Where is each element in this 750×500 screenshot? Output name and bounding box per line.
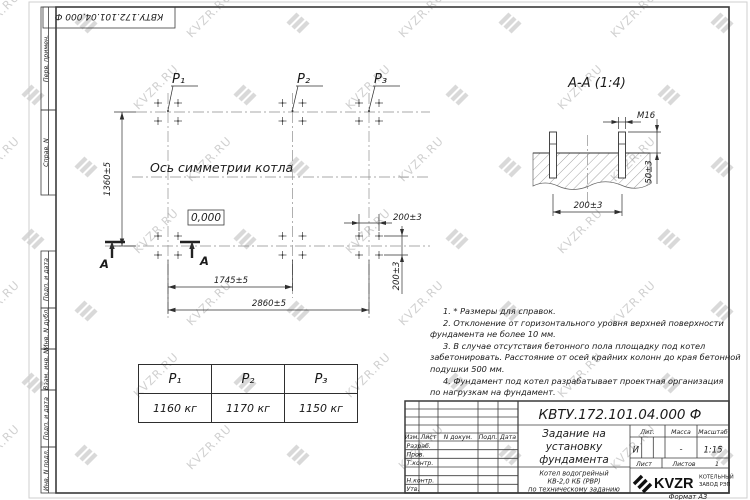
- row-razrab: Разраб.: [407, 442, 431, 450]
- row-prov: Пров.: [407, 452, 425, 459]
- list-label: Лист: [635, 461, 652, 468]
- listov-value: 1: [715, 461, 719, 468]
- masshtab-label: Масштаб: [698, 428, 728, 436]
- margin-label-podp-data-1: Подп. и дата: [43, 258, 50, 301]
- plan-dim-bolt-horizontal: 200±3: [393, 213, 422, 223]
- load-table-header: P₂: [212, 365, 285, 394]
- section-view: А-А (1:4) М16 50±3 200±3: [533, 76, 661, 216]
- note-line: 2. Отклонение от горизонтального уровня …: [430, 318, 741, 330]
- corner-stamp-number: КВТУ.172.101.04.000 Ф: [54, 11, 163, 21]
- section-mark-letter-1: А: [99, 257, 109, 271]
- col-dokum: N докум.: [444, 434, 473, 441]
- row-utv: Утв.: [407, 486, 420, 493]
- section-dim-thread: М16: [637, 111, 656, 121]
- plan-dim-height: 1360±5: [103, 162, 113, 196]
- product-line-1: Котел водогрейный: [539, 470, 609, 478]
- margin-label-vzam-inv: Взам. инв. N: [43, 349, 50, 390]
- logo-caption-2: ЗАВОД РЭП: [699, 482, 731, 488]
- lit-label: Лит.: [639, 429, 654, 436]
- masshtab-value: 1:15: [703, 446, 722, 456]
- margin-label-sprav-n: Справ. N: [43, 138, 50, 167]
- anchor-bolt-marks: [154, 99, 383, 259]
- load-table-value-row: 1160 кг 1170 кг 1150 кг: [139, 394, 358, 423]
- load-table-value: 1170 кг: [212, 394, 285, 423]
- col-izm: Изм.: [405, 434, 420, 441]
- load-table-header: P₁: [139, 365, 212, 394]
- section-dim-protrusion: 50±3: [645, 160, 655, 183]
- plan-load-label-p3: P₃: [374, 72, 387, 87]
- section-title: А-А (1:4): [567, 76, 626, 91]
- title-block-doc-number: КВТУ.172.101.04.000 Ф: [539, 407, 702, 423]
- load-table-value: 1150 кг: [285, 394, 358, 423]
- technical-notes: 1. * Размеры для справок. 2. Отклонение …: [430, 306, 741, 399]
- section-cut-marks: [105, 242, 200, 258]
- logo-caption-1: КОТЕЛЬНЫЙ: [699, 474, 734, 481]
- kvzr-logo-icon: [634, 476, 651, 492]
- note-line: забетонировать. Расстояние от осей крайн…: [430, 352, 741, 364]
- plan-level-mark: 0,000: [191, 212, 221, 224]
- corner-stamp: КВТУ.172.101.04.000 Ф: [43, 7, 175, 28]
- col-data: Дата: [499, 434, 516, 441]
- section-mark-letter-2: А: [199, 254, 209, 268]
- doc-title-line-2: установку: [545, 441, 603, 453]
- plan-dim-bolt-vertical: 200±3: [392, 262, 402, 291]
- load-table-header: P₃: [285, 365, 358, 394]
- load-table-header-row: P₁ P₂ P₃: [139, 365, 358, 394]
- row-nkontr: Н.контр.: [407, 478, 435, 485]
- format-note: Формат А3: [669, 493, 708, 500]
- plan-dim-span-1: 1745±5: [214, 276, 248, 286]
- doc-title-line-3: фундамента: [539, 454, 609, 466]
- margin-label-inv-dubl: Инв. N дубл.: [42, 308, 50, 349]
- plan-load-label-p1: P₁: [172, 72, 185, 87]
- note-line: подушки 500 мм.: [430, 364, 741, 376]
- note-line: по нагрузкам на фундамент.: [430, 387, 741, 399]
- drawing-sheet: { "watermark": { "text": "KVZR.RU" }, "c…: [0, 0, 750, 500]
- note-line: 1. * Размеры для справок.: [430, 306, 741, 318]
- sheet-frame: [29, 2, 747, 498]
- margin-columns: Перв. примен. Справ. N Подп. и дата Инв.…: [41, 7, 56, 493]
- drawing-canvas: КВТУ.172.101.04.000 Ф Перв. примен. Спра…: [0, 0, 750, 500]
- title-block: КВТУ.172.101.04.000 Ф Изм. Лист N докум.…: [405, 401, 734, 500]
- plan-symmetry-axis-label: Ось симметрии котла: [150, 160, 293, 175]
- margin-label-podp-data-2: Подп. и дата: [43, 397, 50, 440]
- margin-label-inv-podl: Инв. N подл.: [43, 449, 50, 491]
- product-line-3: по техническому заданию: [528, 486, 620, 494]
- lit-value: И: [633, 446, 640, 456]
- note-line: фундамента не более 10 мм.: [430, 329, 741, 341]
- margin-label-perv-primen: Перв. примен.: [43, 35, 50, 82]
- col-list: Лист: [420, 434, 437, 441]
- kvzr-logo-text: KVZR: [654, 476, 694, 492]
- plan-load-label-p2: P₂: [297, 72, 310, 87]
- massa-value: -: [679, 445, 682, 455]
- plan-view: P₁ P₂ P₃ Ось симметрии котла 0,000 1360±…: [99, 72, 430, 318]
- doc-title-line-1: Задание на: [542, 428, 606, 440]
- product-line-2: КВ-2,0 КБ (РВР): [547, 478, 600, 486]
- col-podp: Подп.: [479, 434, 498, 441]
- section-dim-spacing: 200±3: [574, 201, 603, 211]
- row-tkontr: Т.контр.: [407, 460, 434, 467]
- load-table: P₁ P₂ P₃ 1160 кг 1170 кг 1150 кг: [138, 364, 358, 423]
- massa-label: Масса: [671, 429, 691, 436]
- plan-dim-span-2: 2860±5: [252, 299, 286, 309]
- note-line: 3. В случае отсутствия бетонного пола пл…: [430, 341, 741, 353]
- listov-label: Листов: [671, 461, 695, 468]
- load-table-value: 1160 кг: [139, 394, 212, 423]
- note-line: 4. Фундамент под котел разрабатывает про…: [430, 376, 741, 388]
